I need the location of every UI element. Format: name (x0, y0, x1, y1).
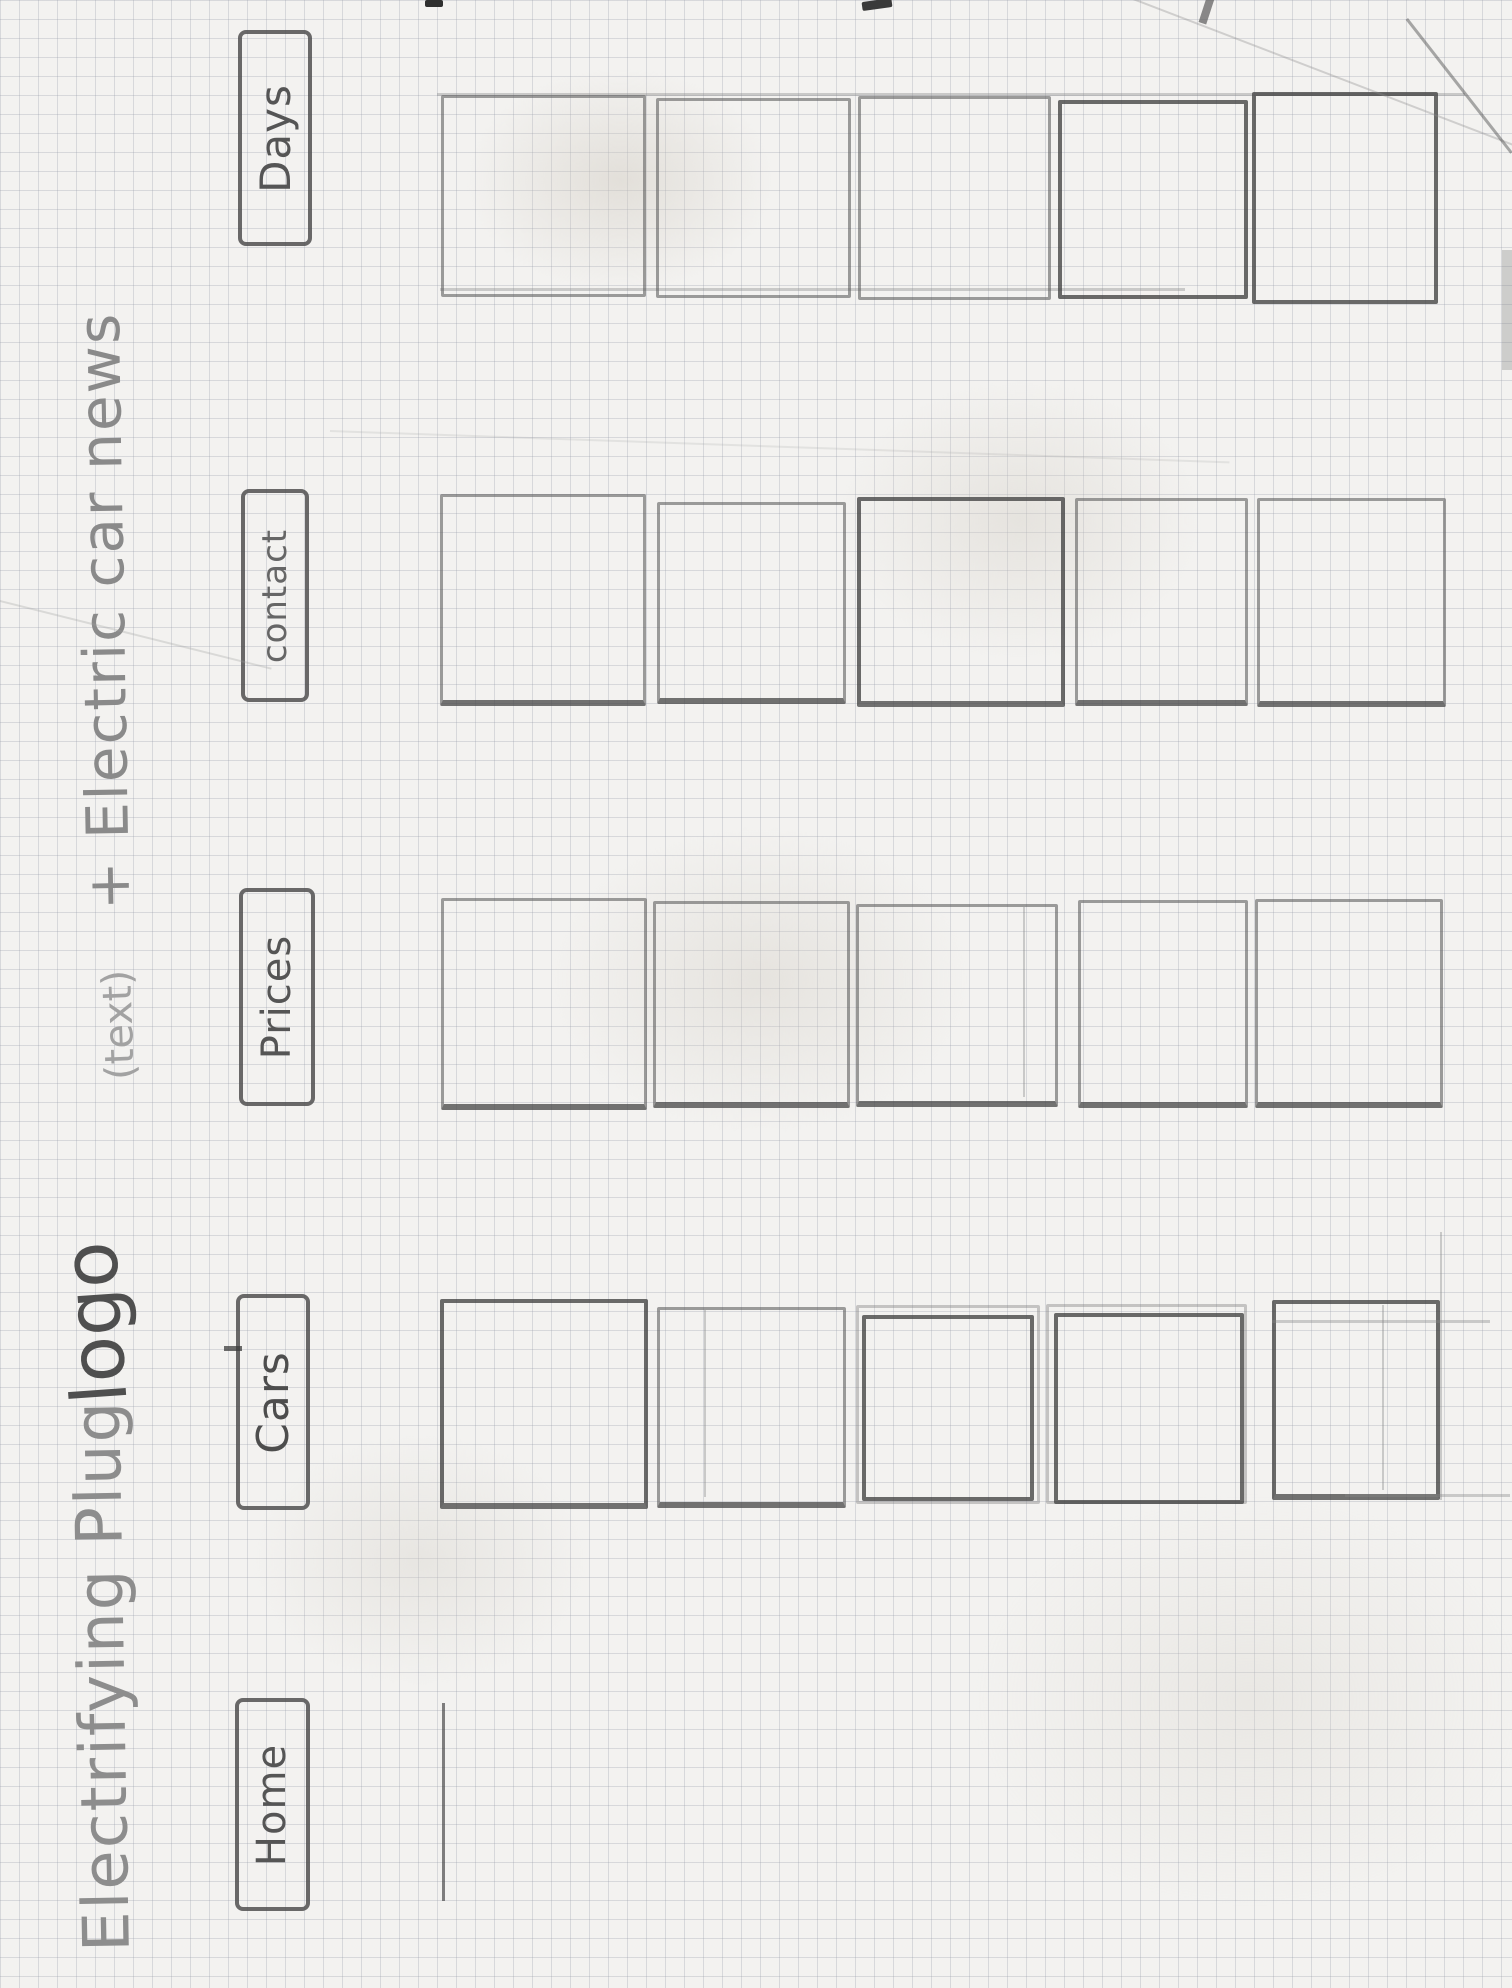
wireframe-box (1255, 899, 1443, 1108)
wireframe-box (856, 904, 1058, 1107)
scan-edge-mark (862, 0, 893, 11)
wireframe-box (1252, 92, 1438, 304)
title-main: Electrifying Plug (61, 1399, 145, 1952)
paper-crease (330, 430, 1230, 463)
scan-edge-mark (1502, 250, 1512, 370)
wireframe-box-inner (862, 1315, 1034, 1501)
nav-button-label: Prices (254, 935, 300, 1059)
nav-button-days: Days (238, 30, 312, 246)
nav-button-label: Days (251, 84, 300, 193)
scanned-wireframe-sketch: { "page": { "paper_color": "#f3f2f0", "g… (0, 0, 1512, 1988)
nav-button-label: Cars (248, 1351, 299, 1454)
wireframe-line (1023, 907, 1025, 1097)
wireframe-line-started (442, 1703, 445, 1901)
nav-button-label: contact (255, 528, 295, 662)
wireframe-box (441, 95, 646, 297)
scan-edge-mark (425, 0, 443, 7)
wireframe-box (440, 494, 646, 706)
wireframe-box (857, 497, 1065, 707)
nav-button-prices: Prices (239, 888, 315, 1106)
wireframe-box (653, 901, 850, 1108)
wireframe-box (1272, 1300, 1440, 1500)
title-logo-annotation: logo (44, 1239, 144, 1407)
wireframe-line (1440, 1232, 1442, 1500)
nav-button-label: Home (250, 1743, 296, 1865)
nav-button-contact: contact (241, 489, 309, 702)
scan-edge-mark (1199, 0, 1216, 25)
wireframe-box (1078, 900, 1248, 1108)
title-suffix: + Electric car news (65, 311, 143, 910)
wireframe-box (858, 96, 1051, 300)
wireframe-box (657, 1307, 846, 1508)
title-text-annotation: (text) (94, 969, 144, 1081)
wireframe-box (1058, 100, 1248, 299)
wireframe-line (1382, 1305, 1384, 1490)
wireframe-box (1075, 498, 1248, 706)
wireframe-box-inner (1054, 1313, 1244, 1504)
wireframe-line (1272, 1320, 1490, 1323)
nav-button-cars: Cars (236, 1294, 310, 1510)
wireframe-box (441, 898, 647, 1110)
nav-button-home: Home (235, 1698, 310, 1911)
wireframe-box (657, 502, 846, 704)
pencil-tick (224, 1346, 242, 1351)
wireframe-line (704, 1310, 706, 1497)
site-title-handwritten: Electrifying Plug logo (text) + Electric… (48, 142, 183, 1952)
wireframe-line (1345, 1494, 1510, 1497)
wireframe-box (1257, 498, 1446, 707)
wireframe-box (440, 1299, 648, 1509)
wireframe-box (656, 98, 851, 298)
